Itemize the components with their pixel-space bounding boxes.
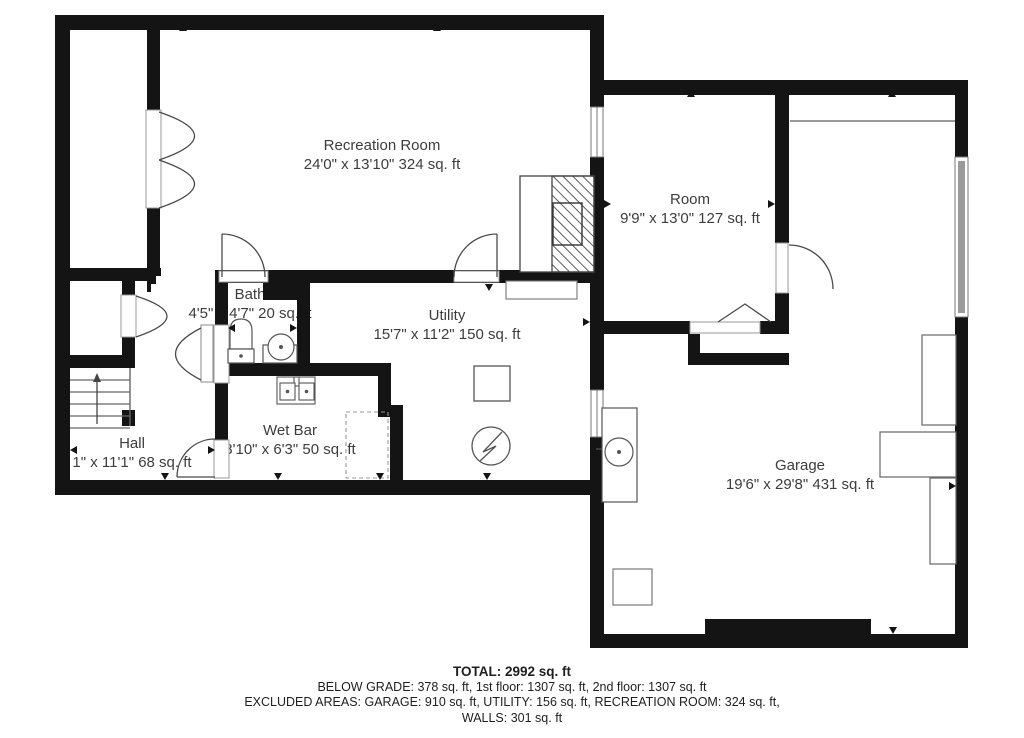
room-dimensions: 9'9" x 13'0" 127 sq. ft <box>600 209 780 228</box>
label-garage: Garage 19'6" x 29'8" 431 sq. ft <box>700 456 900 494</box>
room-name: Utility <box>347 306 547 325</box>
floor-plan: Recreation Room 24'0" x 13'10" 324 sq. f… <box>0 0 1024 738</box>
label-wet-bar: Wet Bar 8'10" x 6'3" 50 sq. ft <box>205 421 375 459</box>
summary-below-grade: BELOW GRADE: 378 sq. ft, 1st floor: 1307… <box>0 680 1024 696</box>
room-dimensions: 8'10" x 6'3" 50 sq. ft <box>205 440 375 459</box>
room-dimensions: 1" x 11'1" 68 sq. ft <box>52 453 212 472</box>
room-name: Hall <box>52 434 212 453</box>
label-hall: Hall 1" x 11'1" 68 sq. ft <box>52 434 212 472</box>
label-bath: Bath 4'5" x 4'7" 20 sq. ft <box>168 285 332 323</box>
area-summary: TOTAL: 2992 sq. ft BELOW GRADE: 378 sq. … <box>0 664 1024 726</box>
room-name: Wet Bar <box>205 421 375 440</box>
label-room: Room 9'9" x 13'0" 127 sq. ft <box>600 190 780 228</box>
label-utility: Utility 15'7" x 11'2" 150 sq. ft <box>347 306 547 344</box>
room-name: Room <box>600 190 780 209</box>
summary-total: TOTAL: 2992 sq. ft <box>0 664 1024 680</box>
summary-excluded-areas: EXCLUDED AREAS: GARAGE: 910 sq. ft, UTIL… <box>0 695 1024 711</box>
room-name: Garage <box>700 456 900 475</box>
room-dimensions: 15'7" x 11'2" 150 sq. ft <box>347 325 547 344</box>
room-dimensions: 19'6" x 29'8" 431 sq. ft <box>700 475 900 494</box>
room-name: Bath <box>168 285 332 304</box>
room-dimensions: 24'0" x 13'10" 324 sq. ft <box>252 155 512 174</box>
label-recreation-room: Recreation Room 24'0" x 13'10" 324 sq. f… <box>252 136 512 174</box>
room-dimensions: 4'5" x 4'7" 20 sq. ft <box>168 304 332 323</box>
room-name: Recreation Room <box>252 136 512 155</box>
summary-walls: WALLS: 301 sq. ft <box>0 711 1024 727</box>
room-labels: Recreation Room 24'0" x 13'10" 324 sq. f… <box>0 0 1024 738</box>
